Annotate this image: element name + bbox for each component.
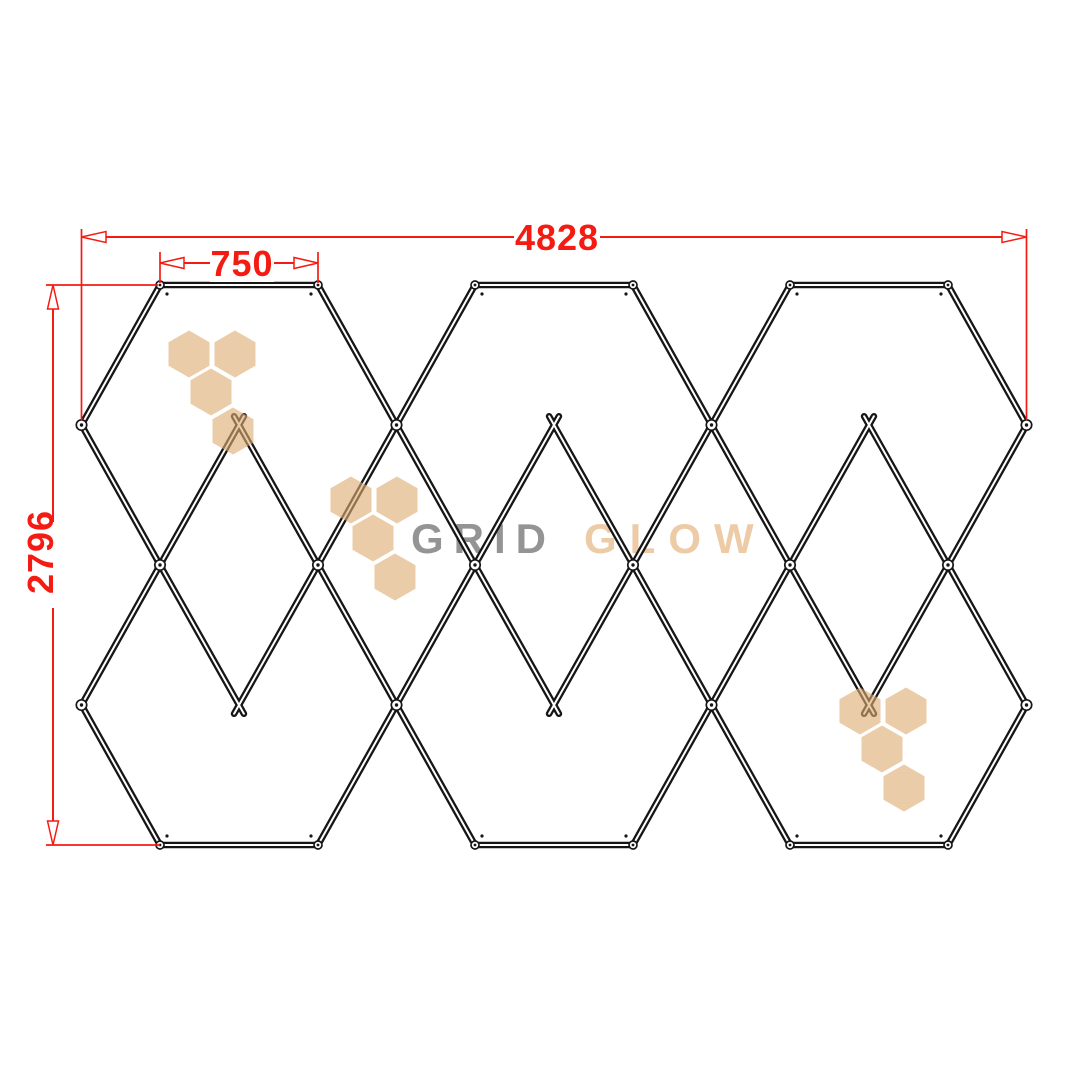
corner-joint (629, 281, 637, 289)
brand-watermark: GRID GLOW (411, 515, 767, 562)
corner-joint (786, 841, 794, 849)
dim-label-width: 4828 (515, 217, 599, 258)
connector-joint (391, 700, 401, 710)
corner-joint (629, 841, 637, 849)
arrowhead-left (160, 258, 184, 269)
corner-joint (314, 841, 322, 849)
dim-label-cell: 750 (210, 243, 273, 284)
connector-joint (706, 700, 716, 710)
dim-label-height: 2796 (20, 510, 61, 594)
connector-joint (706, 420, 716, 430)
connector-joint (785, 560, 795, 570)
connector-joint (313, 560, 323, 570)
watermark-cluster-center (331, 477, 418, 601)
watermark-cluster-bottom-right (840, 688, 927, 812)
connector-joint (470, 560, 480, 570)
corner-joint (786, 281, 794, 289)
corner-joint (944, 281, 952, 289)
arrowhead-left (82, 232, 107, 243)
watermark-cluster-top-left (169, 331, 256, 455)
connector-joint (943, 560, 953, 570)
arrowhead-right (1002, 232, 1027, 243)
connector-joint (628, 560, 638, 570)
connector-joint (391, 420, 401, 430)
connector-joint (1021, 700, 1031, 710)
connector-joint (76, 700, 86, 710)
connector-joint (1021, 420, 1031, 430)
corner-joint (944, 841, 952, 849)
connector-joint (76, 420, 86, 430)
arrowhead-up (48, 285, 59, 309)
rivet-dots (165, 292, 942, 837)
corner-joint (471, 841, 479, 849)
arrowhead-right (294, 258, 318, 269)
watermark-hex-clusters (169, 331, 927, 812)
hex-grid-dimension-drawing: GRID GLOW (0, 0, 1080, 1080)
arrowhead-down (48, 821, 59, 845)
corner-joint (471, 281, 479, 289)
connector-joint (155, 560, 165, 570)
